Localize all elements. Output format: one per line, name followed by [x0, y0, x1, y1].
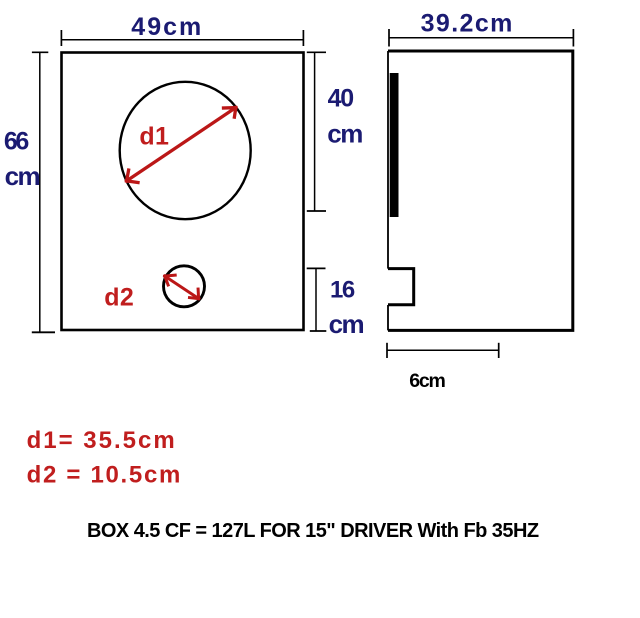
svg-text:cm: cm — [329, 309, 364, 339]
svg-text:40: 40 — [328, 84, 354, 112]
svg-text:d2: d2 — [104, 283, 134, 311]
svg-text:d2 = 10.5cm: d2 = 10.5cm — [27, 461, 182, 488]
svg-text:66: 66 — [4, 127, 29, 155]
svg-text:d1= 35.5cm: d1= 35.5cm — [27, 427, 177, 454]
svg-text:cm: cm — [5, 161, 40, 191]
svg-text:6cm: 6cm — [409, 370, 445, 392]
svg-text:49cm: 49cm — [131, 13, 203, 41]
svg-text:cm: cm — [327, 118, 362, 148]
svg-text:d1: d1 — [139, 123, 169, 151]
svg-text:BOX 4.5 CF = 127L FOR 15" DRIV: BOX 4.5 CF = 127L FOR 15" DRIVER With Fb… — [87, 520, 539, 542]
svg-text:16: 16 — [330, 277, 355, 304]
svg-text:39.2cm: 39.2cm — [421, 10, 514, 38]
